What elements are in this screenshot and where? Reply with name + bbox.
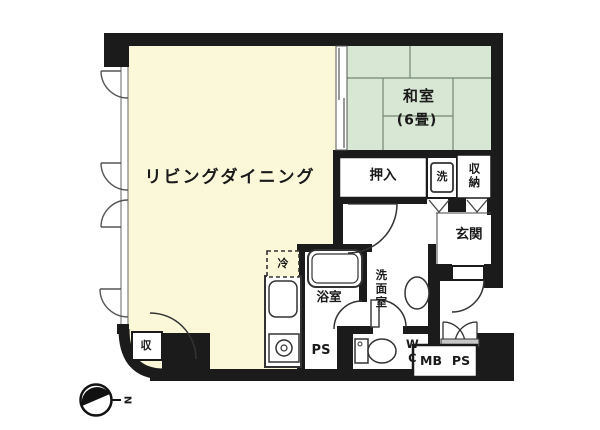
room-label-oshiire: 押入 [370, 169, 397, 184]
bathtub-icon [308, 250, 362, 287]
stove-box [269, 334, 299, 362]
floor-plan: リビングダイニング 和室 (6畳) 押入 洗 収納 玄関 冷 浴室 洗面室 収 … [0, 0, 600, 430]
compass-north-icon [81, 385, 122, 416]
floor-plan-drawing [0, 0, 600, 430]
room-label-living-dining: リビングダイニング [145, 169, 316, 188]
label-refrigerator: 冷 [278, 258, 289, 270]
label-pipe-space-2: PS [452, 354, 470, 368]
toilet-icon [355, 339, 396, 363]
bathroom-door-arc [334, 301, 362, 329]
label-pipe-space-1: PS [312, 344, 331, 358]
room-label-japanese-room-size: (6畳) [397, 113, 438, 128]
room-label-small-storage: 収 [141, 340, 152, 352]
window-wall [121, 63, 128, 331]
room-label-bathroom: 浴室 [316, 290, 341, 304]
entry-door-leaf [452, 266, 484, 280]
room-label-washroom: 洗面室 [375, 269, 388, 310]
room-label-japanese-room: 和室 [403, 88, 435, 105]
room-label-storage: 収納 [468, 163, 481, 190]
room-label-toilet: WC [406, 337, 419, 365]
compass-north-label: N [122, 396, 133, 404]
room-label-entrance: 玄関 [456, 228, 483, 243]
label-washing-machine: 洗 [437, 171, 448, 183]
entry-door-arc [452, 280, 484, 312]
kitchen-sink-icon [269, 281, 297, 317]
label-meter-box: MB [420, 354, 442, 368]
sliding-door [336, 46, 347, 150]
washbasin-icon [405, 277, 429, 309]
